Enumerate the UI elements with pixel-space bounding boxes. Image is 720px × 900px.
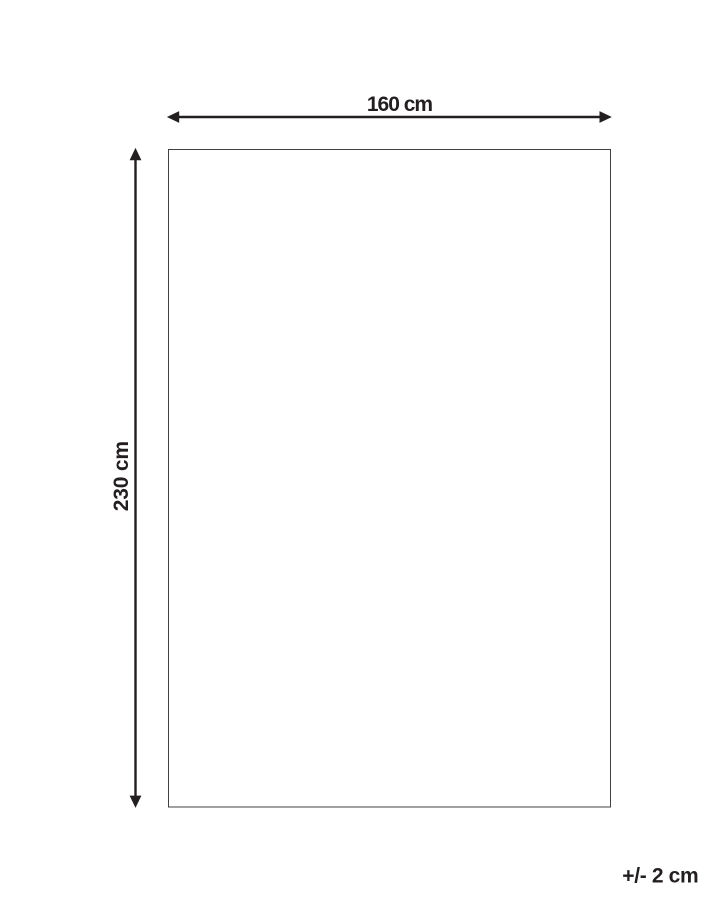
svg-text:230 cm: 230 cm	[110, 441, 133, 511]
svg-text:+/- 2 cm: +/- 2 cm	[622, 865, 698, 888]
svg-text:160 cm: 160 cm	[367, 93, 433, 116]
